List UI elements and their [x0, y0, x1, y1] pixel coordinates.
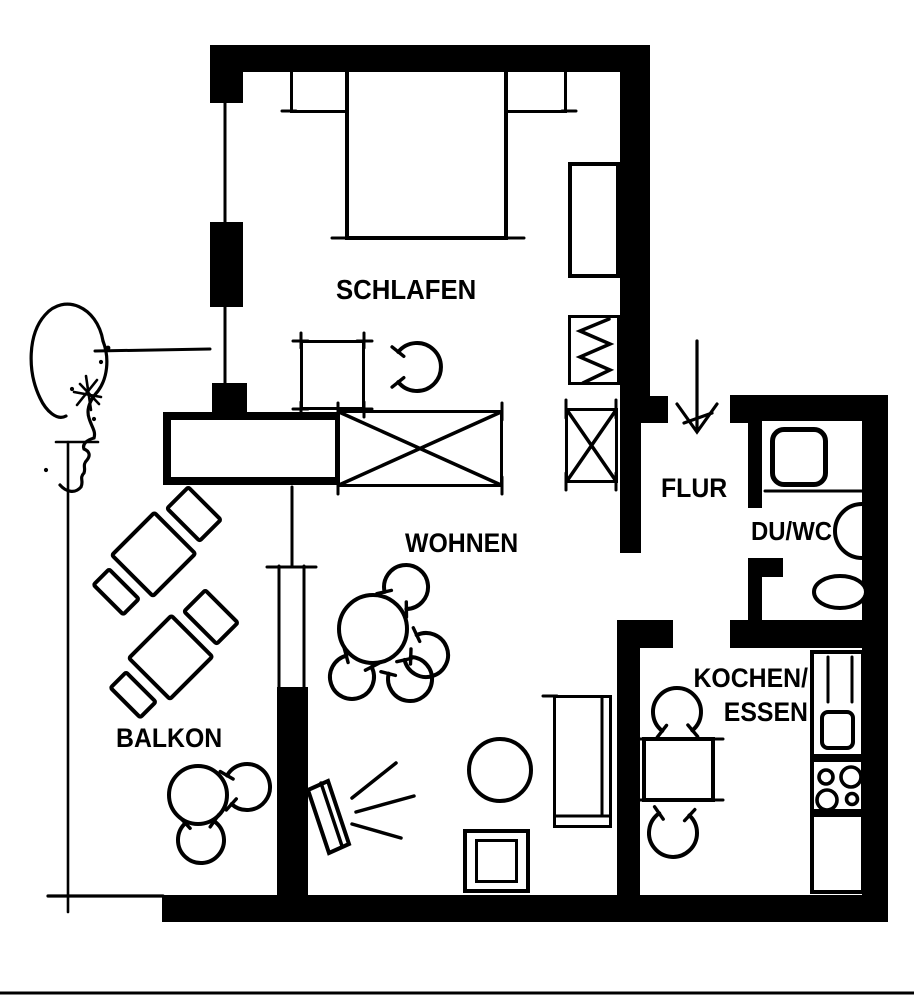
wall-duwc-bottom-stub — [748, 558, 783, 577]
wall-right-exterior — [862, 395, 888, 922]
sight-line — [95, 349, 210, 351]
coat-rack — [568, 315, 620, 385]
tv-with-beam-icon — [308, 763, 414, 853]
wall-duwc-kitchen — [730, 620, 888, 648]
nightstand-left — [290, 72, 345, 113]
double-bed — [345, 72, 508, 240]
room-label-duwc: DU/WC — [751, 518, 832, 544]
wall-top — [210, 45, 650, 72]
washbasin-icon — [835, 504, 862, 558]
wardrobe-x-large — [337, 410, 503, 487]
room-label-kochen-essen: KOCHEN/ ESSEN — [672, 661, 808, 729]
wall-flur-left-upper — [620, 423, 641, 553]
room-label-kochen-line2: ESSEN — [672, 695, 808, 729]
balcony-door — [267, 566, 316, 688]
entrance-arrow-icon — [677, 341, 717, 432]
wall-window-pier-2 — [212, 383, 247, 412]
wall-duwc-left-stub — [730, 401, 762, 423]
wall-kitchen-stub — [617, 620, 673, 648]
shower-tray — [770, 427, 828, 487]
kitchen-stove — [810, 758, 865, 813]
stool — [467, 737, 533, 803]
room-label-flur: FLUR — [661, 475, 727, 502]
window-lines — [225, 103, 292, 566]
room-label-kochen-line1: KOCHEN/ — [672, 661, 808, 695]
wall-duwc-left-pier — [748, 423, 762, 508]
wall-top-left-post — [210, 45, 243, 103]
floor-plan: SCHLAFEN WOHNEN BALKON FLUR DU/WC KOCHEN… — [0, 0, 914, 1000]
balcony-table — [167, 764, 229, 826]
wardrobe — [568, 162, 620, 278]
side-table-inner — [475, 839, 518, 883]
wall-window-pier-1 — [210, 222, 243, 307]
nightstand-right — [508, 72, 567, 113]
wall-bedroom-right — [620, 45, 650, 397]
toilet-icon — [814, 576, 866, 608]
room-label-balkon: BALKON — [116, 725, 222, 752]
room-label-schlafen: SCHLAFEN — [336, 276, 476, 304]
couch — [553, 695, 612, 828]
wall-flur-stub-top — [620, 396, 668, 423]
dining-table — [337, 593, 409, 665]
kitchen-counter-lower — [810, 813, 865, 894]
dressing-table — [300, 340, 365, 410]
wardrobe-x-small — [565, 408, 618, 483]
kitchen-table — [642, 737, 715, 802]
head-profile-sketch-icon — [31, 304, 110, 491]
wall-bottom-exterior — [162, 895, 888, 922]
kitchen-sink — [820, 710, 855, 750]
wall-balcony-door-pier — [277, 687, 308, 897]
room-label-wohnen: WOHNEN — [405, 530, 518, 557]
wall-wohnen-kitchen — [617, 622, 640, 897]
